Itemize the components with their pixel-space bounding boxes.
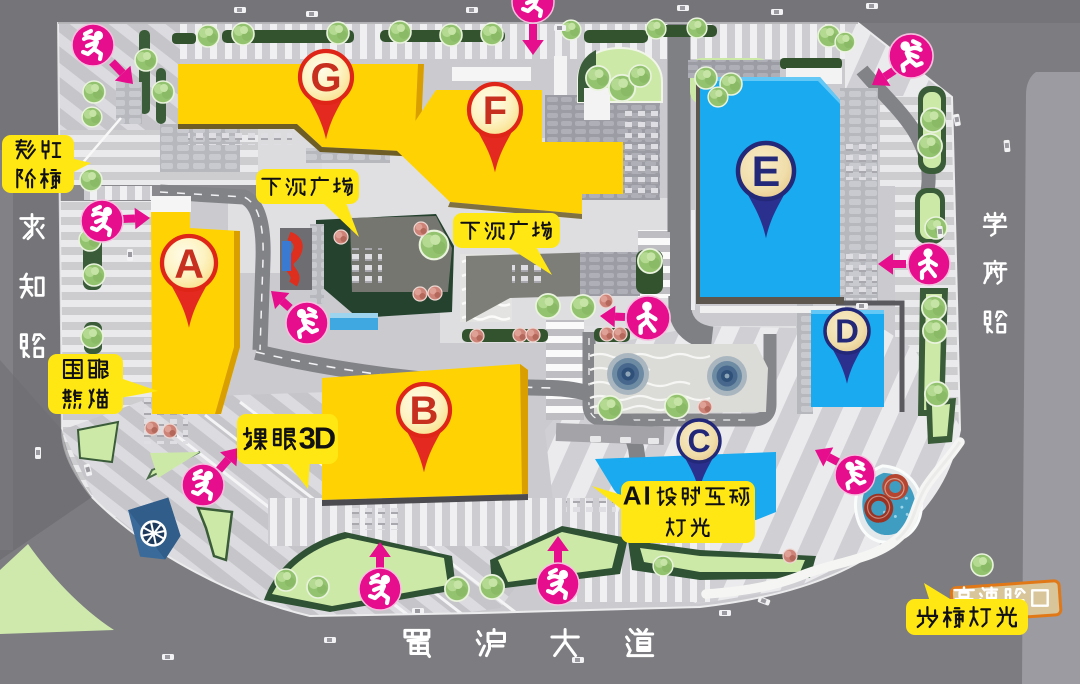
svg-text:D: D xyxy=(835,313,859,350)
svg-text:D: D xyxy=(314,420,336,455)
svg-text:A: A xyxy=(174,240,204,286)
svg-text:B: B xyxy=(410,389,439,433)
svg-text:I: I xyxy=(643,480,650,510)
svg-text:C: C xyxy=(687,423,710,459)
svg-text:A: A xyxy=(623,480,642,510)
svg-text:F: F xyxy=(483,89,507,133)
svg-text:E: E xyxy=(752,148,781,196)
svg-text:G: G xyxy=(310,56,341,100)
